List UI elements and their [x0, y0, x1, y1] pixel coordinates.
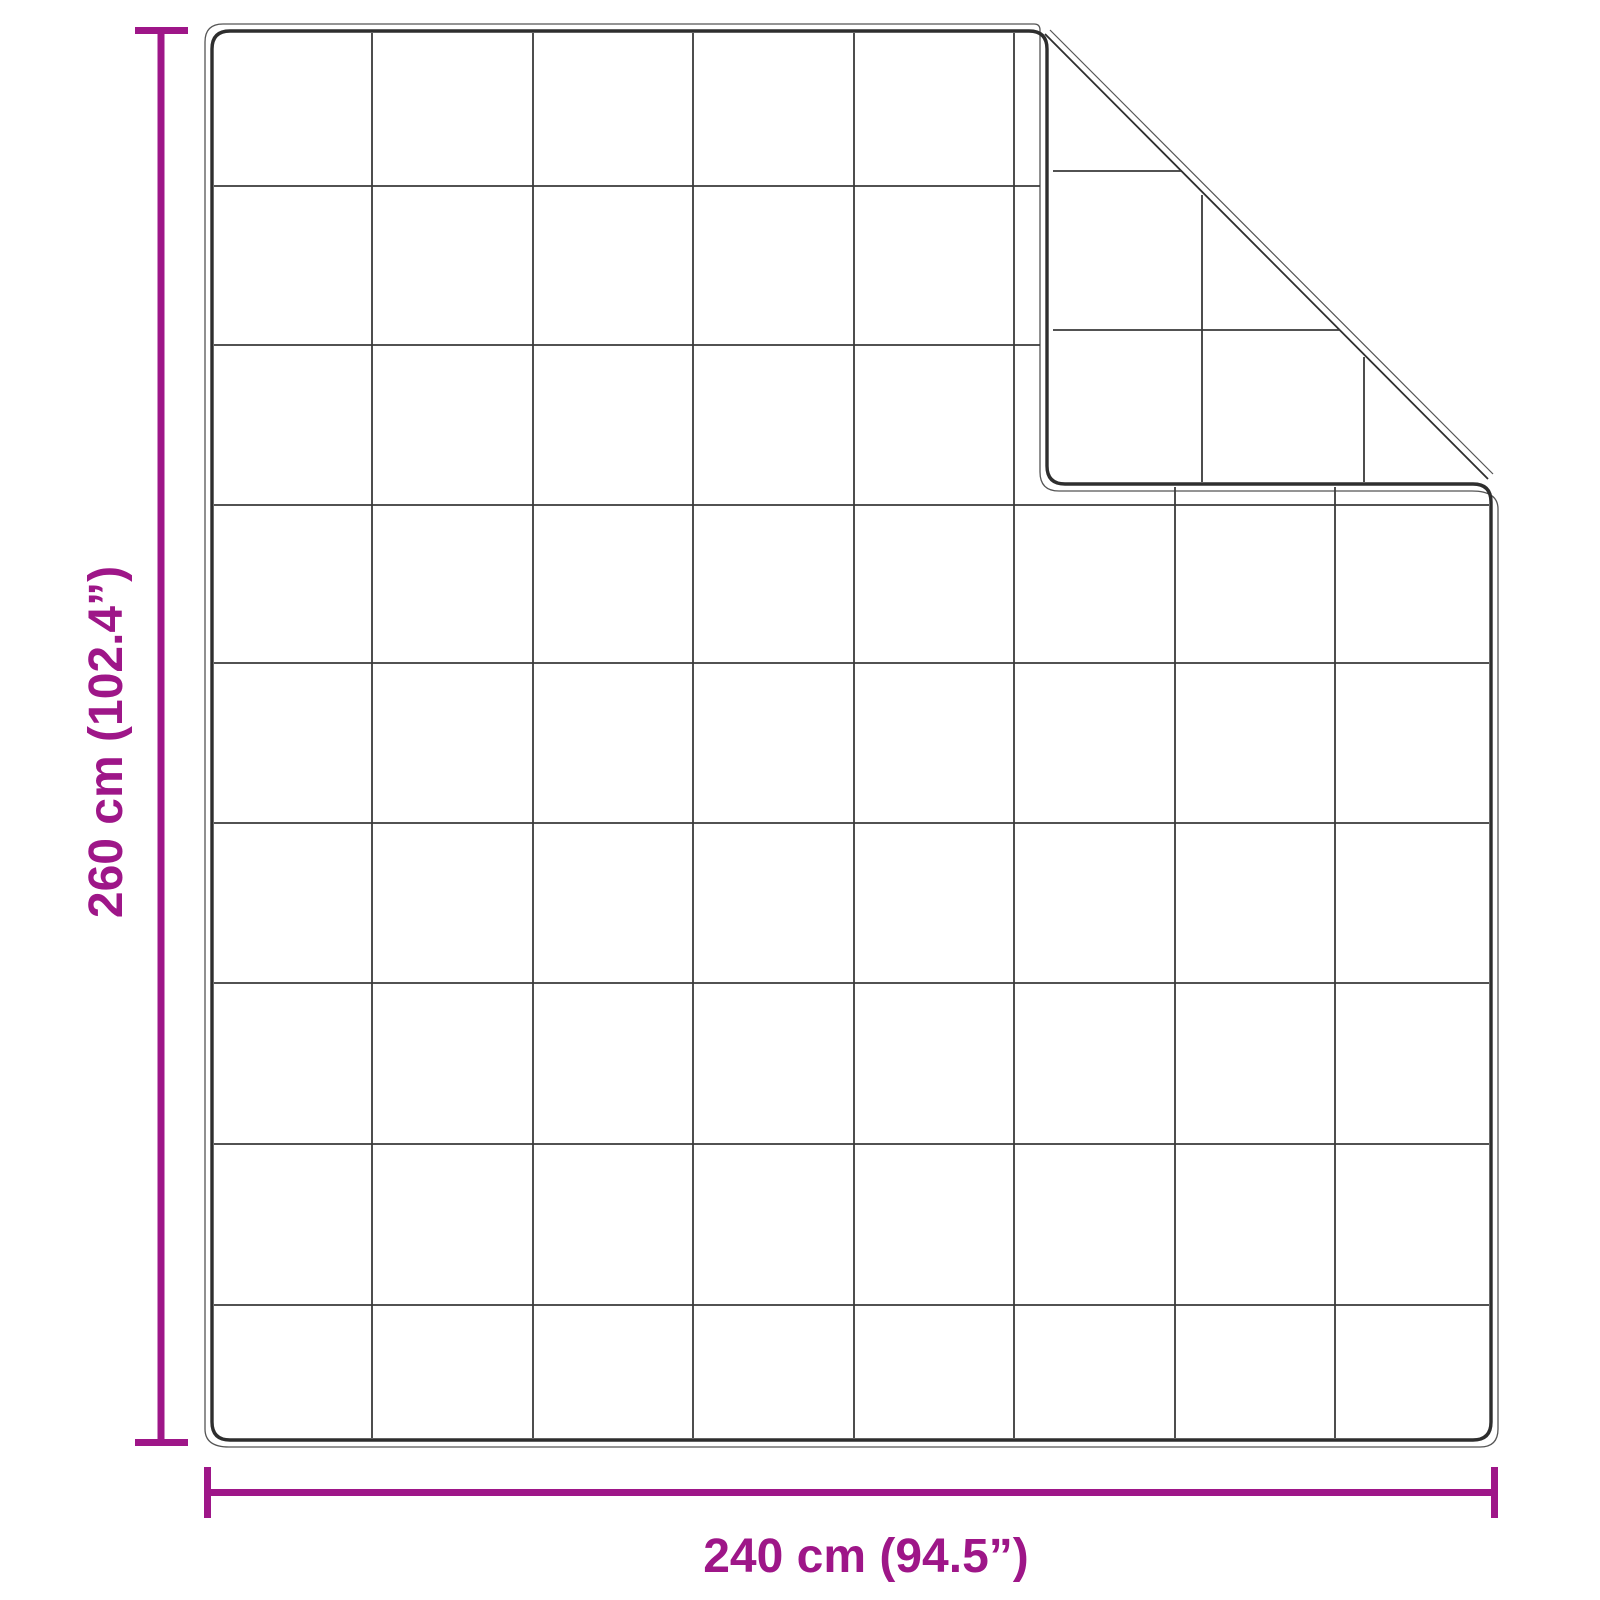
quilt-grid	[214, 33, 1489, 1438]
blanket-dimension-diagram: 260 cm (102.4”) 240 cm (94.5”)	[0, 0, 1600, 1600]
fold-crease-contour	[1050, 30, 1493, 474]
horizontal-dimension-label: 240 cm (94.5”)	[703, 1530, 1029, 1583]
dimension-diagram-stage: 260 cm (102.4”) 240 cm (94.5”)	[0, 0, 1600, 1600]
blanket-border	[212, 31, 1491, 1440]
folded-corner	[1045, 30, 1493, 482]
vertical-dimension: 260 cm (102.4”)	[80, 27, 188, 1446]
fold-crease	[1045, 34, 1488, 479]
horizontal-dimension: 240 cm (94.5”)	[207, 1467, 1498, 1583]
vertical-dimension-label: 260 cm (102.4”)	[80, 566, 133, 918]
blanket-outer-contour	[205, 24, 1498, 1447]
